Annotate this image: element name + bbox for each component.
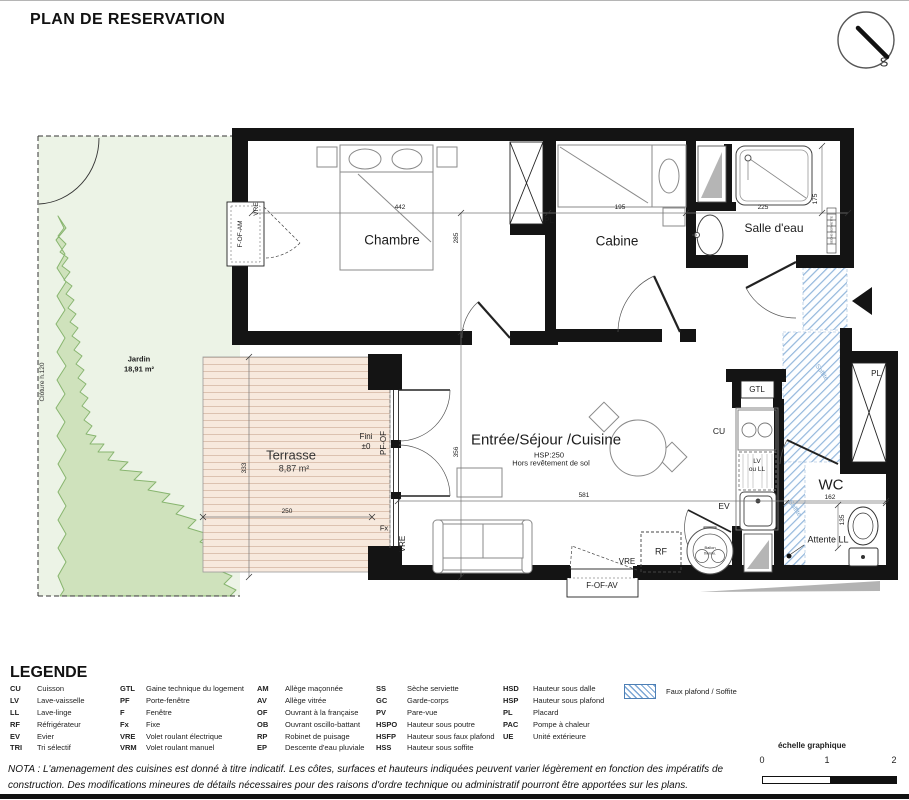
toilet-icon (848, 507, 878, 566)
legend-label: Ouvrant oscillo-battant (285, 720, 360, 729)
legend-abbr: UE (503, 732, 533, 741)
legend-column-2: GTLGaine technique du logement PFPorte-f… (120, 683, 244, 754)
legend-label: Evier (37, 732, 54, 741)
hob-burner-icon (742, 423, 756, 437)
floor-plan-page: PLAN DE RESERVATION S Chambre Cabine Sal… (0, 0, 909, 800)
rf-tag: RF (655, 548, 667, 557)
legend-abbr: EV (10, 732, 37, 741)
legend-label: Fixe (146, 720, 160, 729)
legend-abbr: VRE (120, 732, 146, 741)
legend-column-3: AMAllège maçonnée AVAllège vitrée OFOuvr… (257, 683, 364, 754)
legend-abbr: CU (10, 684, 37, 693)
room-label-chambre: Chambre (364, 233, 420, 247)
legend-abbr: Fx (120, 720, 146, 729)
fini-note: Fini (360, 433, 373, 441)
entrance-arrow-icon (852, 287, 872, 315)
room-label-cabine: Cabine (596, 234, 639, 248)
attente-ll-note: Attente LL (807, 536, 848, 545)
room-label-salle-deau: Salle d'eau (744, 222, 803, 234)
dim-195: 195 (615, 205, 626, 212)
pf-of-tag: PF-OF (380, 431, 388, 455)
duct-box-icon (698, 146, 726, 202)
sofa-icon (433, 520, 532, 573)
dim-250: 250 (282, 509, 293, 516)
legend-label: Volet roulant manuel (146, 743, 214, 752)
legend-abbr: F (120, 708, 146, 717)
legend-abbr: HSFP (376, 732, 407, 741)
closet-tag-pl: PL (871, 370, 881, 378)
legend-abbr: PAC (503, 720, 533, 729)
dim-162: 162 (825, 495, 836, 502)
legend-label: Pare-vue (407, 708, 437, 717)
legend-column-5: HSDHauteur sous dalle HSPHauteur sous pl… (503, 683, 604, 742)
legend-column-4: SSSèche serviette GCGarde-corps PVPare-v… (376, 683, 495, 754)
floor-note: Hors revêtement de sol (512, 459, 590, 467)
sink-icon (740, 492, 776, 530)
legend-label: Hauteur sous faux plafond (407, 732, 495, 741)
legend-label: Allège vitrée (285, 696, 326, 705)
compass-south-label: S (880, 56, 889, 69)
scale-tick-2: 2 (891, 755, 896, 765)
terrasse-area: 8,87 m² (279, 465, 310, 474)
scale-tick-0: 0 (759, 755, 764, 765)
dim-225: 225 (758, 205, 769, 212)
scale-bar-icon (762, 776, 897, 784)
legend-abbr: HSP (503, 696, 533, 705)
gtl-tag: GTL (749, 386, 765, 394)
closet-tag-pl: PL (544, 217, 554, 225)
legend-abbr: TRI (10, 743, 37, 752)
legend-label: Hauteur sous poutre (407, 720, 475, 729)
scale-title: échelle graphique (778, 741, 846, 750)
soffit-swatch-icon (624, 684, 656, 699)
legend-label: Lave-linge (37, 708, 72, 717)
legend-abbr: RF (10, 720, 37, 729)
legend-label: Ouvrant à la française (285, 708, 358, 717)
window-tag-f-of-am: F-OF-AM (238, 220, 245, 247)
dim-333: 333 (242, 463, 249, 474)
legend-label: Tri sélectif (37, 743, 71, 752)
shower-icon (736, 146, 812, 205)
legend-heading: LEGENDE (10, 664, 87, 682)
legend-abbr: EP (257, 743, 285, 752)
legend-abbr: HSS (376, 743, 407, 752)
lv-tag-2: ou LL (749, 467, 765, 474)
single-bed-icon (558, 145, 686, 226)
water-heater-note-2: thermo. (704, 552, 716, 556)
nota-line-1: NOTA : L'amenagement des cuisines est do… (8, 764, 750, 775)
legend-label: Placard (533, 708, 558, 717)
legend-label: Garde-corps (407, 696, 449, 705)
legend-abbr: LL (10, 708, 37, 717)
water-heater-note: Ballon (704, 546, 715, 550)
legend-abbr: AM (257, 684, 285, 693)
double-bed-icon (317, 145, 457, 270)
coffee-table-icon (457, 468, 502, 497)
dim-135: 135 (840, 515, 847, 526)
legend-abbr: AV (257, 696, 285, 705)
legend-abbr: PF (120, 696, 146, 705)
legend-label: Pompe à chaleur (533, 720, 590, 729)
floor-plan-drawing (0, 0, 909, 800)
legend-abbr: VRM (120, 743, 146, 752)
room-label-terrasse: Terrasse (266, 449, 316, 462)
legend-abbr: GTL (120, 684, 146, 693)
legend-abbr: RP (257, 732, 285, 741)
room-label-wc: WC (819, 478, 844, 493)
legend-abbr: HSD (503, 684, 533, 693)
legend-abbr: PV (376, 708, 407, 717)
legend-label: Descente d'eau pluviale (285, 743, 364, 752)
fence-note: Clôture h.120 (40, 362, 47, 401)
legend-abbr: LV (10, 696, 37, 705)
cu-tag: CU (713, 427, 725, 436)
kitchen-icons (736, 408, 778, 572)
towel-dryer-note: SECHE-SERVIETTE (830, 216, 833, 244)
legend-abbr: OB (257, 720, 285, 729)
duct-box-icon (744, 534, 772, 572)
washbasin-icon (692, 215, 723, 255)
legend-label: Robinet de puisage (285, 732, 350, 741)
fx-tag: Fx (380, 524, 388, 532)
legend-label: Sèche serviette (407, 684, 459, 693)
hob-burner-icon (758, 423, 772, 437)
dim-581: 581 (579, 493, 590, 500)
legend-column-1: CUCuisson LVLave-vaisselle LLLave-linge … (10, 683, 85, 754)
shutter-tag-vre: VRE (254, 202, 261, 215)
legend-label: Hauteur sous plafond (533, 696, 604, 705)
dim-442: 442 (395, 205, 406, 212)
legend-label: Porte-fenêtre (146, 696, 190, 705)
legend-label: Hauteur sous soffite (407, 743, 474, 752)
legend-label: Unité extérieure (533, 732, 586, 741)
room-label-jardin: Jardin (128, 355, 151, 363)
bottom-border (0, 794, 909, 799)
dim-356: 356 (454, 447, 461, 458)
window-tag-f-of-av: F-OF-AV (586, 582, 617, 590)
nota-line-2: construction. Des modifications mineures… (8, 780, 750, 791)
page-title: PLAN DE RESERVATION (30, 11, 225, 29)
legend-abbr: SS (376, 684, 407, 693)
legend-label: Lave-vaisselle (37, 696, 85, 705)
legend-abbr: PL (503, 708, 533, 717)
legend-label: Cuisson (37, 684, 64, 693)
dim-285: 285 (454, 233, 461, 244)
shutter-tag-vre: VRE (619, 558, 635, 566)
legend-label: Fenêtre (146, 708, 172, 717)
legend-label: Gaine technique du logement (146, 684, 244, 693)
soffit-swatch-label: Faux plafond / Soffite (666, 687, 737, 696)
legend-label: Hauteur sous dalle (533, 684, 596, 693)
legend-abbr: OF (257, 708, 285, 717)
legend-label: Réfrigérateur (37, 720, 81, 729)
legend-abbr: HSPO (376, 720, 407, 729)
lv-tag: LV (753, 459, 760, 466)
ev-tag: EV (718, 502, 729, 511)
scale-tick-1: 1 (824, 755, 829, 765)
legend-abbr: GC (376, 696, 407, 705)
legend-label: Allège maçonnée (285, 684, 343, 693)
dim-175: 175 (813, 194, 820, 205)
legend-label: Volet roulant électrique (146, 732, 222, 741)
fini-zero-note: ±0 (362, 443, 371, 451)
exterior-ramp (700, 581, 880, 592)
room-label-sejour: Entrée/Séjour /Cuisine (471, 433, 621, 448)
shutter-tag-vre: VRE (399, 536, 407, 552)
jardin-area: 18,91 m² (124, 365, 154, 373)
soffit-hatch (783, 268, 847, 565)
